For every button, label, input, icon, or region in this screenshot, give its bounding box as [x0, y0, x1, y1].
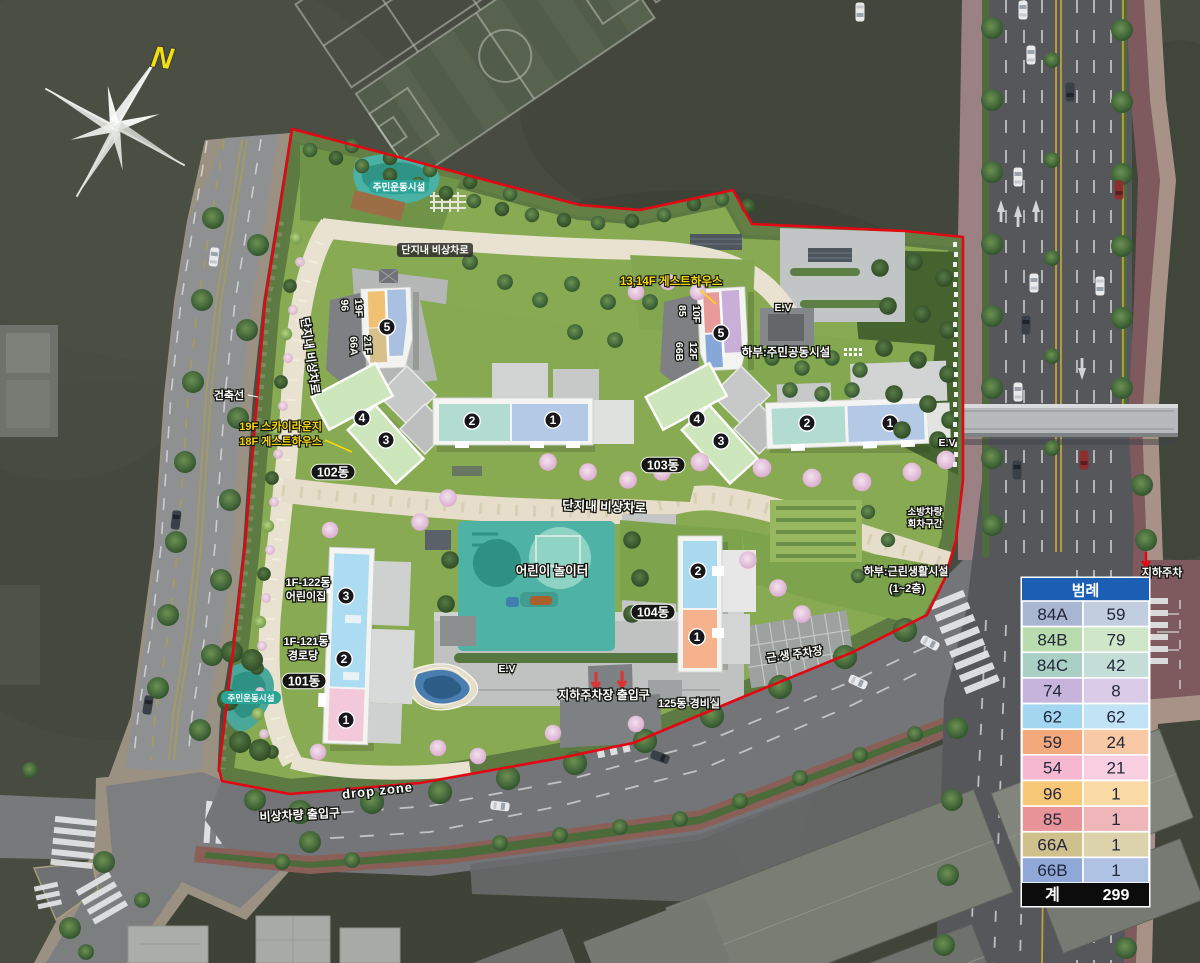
svg-text:계: 계 — [1045, 885, 1060, 904]
svg-text:1: 1 — [550, 413, 557, 427]
svg-text:103동: 103동 — [647, 459, 680, 473]
svg-text:1F-122동: 1F-122동 — [286, 576, 331, 589]
svg-text:E.V: E.V — [939, 437, 956, 449]
svg-text:85: 85 — [1043, 810, 1062, 829]
svg-text:10F: 10F — [690, 305, 702, 324]
svg-text:104동: 104동 — [637, 606, 670, 620]
svg-text:범례: 범례 — [1072, 583, 1100, 600]
svg-text:1: 1 — [694, 630, 701, 644]
svg-text:2: 2 — [469, 414, 476, 428]
svg-text:59: 59 — [1043, 733, 1062, 752]
svg-text:1: 1 — [1111, 836, 1120, 855]
svg-text:건축선: 건축선 — [214, 388, 244, 402]
svg-text:1: 1 — [1111, 784, 1120, 803]
svg-text:19F 스카이라운지: 19F 스카이라운지 — [239, 419, 322, 433]
svg-text:지하주차장 출입구: 지하주차장 출입구 — [558, 687, 650, 702]
svg-text:주민운동시설: 주민운동시설 — [373, 182, 426, 194]
svg-text:19F: 19F — [352, 299, 365, 318]
svg-text:하부:근린생활시설: 하부:근린생활시설 — [864, 564, 949, 578]
svg-text:62: 62 — [1043, 707, 1062, 726]
svg-text:2: 2 — [341, 652, 348, 666]
svg-text:62: 62 — [1107, 707, 1126, 726]
svg-text:어린이집: 어린이집 — [286, 589, 326, 603]
svg-text:1: 1 — [343, 713, 350, 727]
svg-text:5: 5 — [718, 326, 725, 340]
svg-text:96: 96 — [338, 299, 350, 311]
svg-text:단지내 비상차로: 단지내 비상차로 — [562, 498, 647, 516]
svg-text:(1~2층): (1~2층) — [889, 581, 925, 595]
svg-text:3: 3 — [343, 589, 350, 603]
svg-text:2: 2 — [804, 416, 811, 430]
svg-text:84B: 84B — [1037, 631, 1067, 650]
svg-text:어린이 놀이터: 어린이 놀이터 — [516, 563, 588, 578]
svg-text:299: 299 — [1103, 887, 1130, 904]
svg-text:소방차량: 소방차량 — [908, 506, 943, 518]
svg-text:회차구간: 회차구간 — [908, 518, 943, 530]
svg-text:단지내 비상차로: 단지내 비상차로 — [401, 244, 468, 257]
svg-text:21: 21 — [1107, 759, 1126, 778]
svg-text:21F: 21F — [361, 336, 374, 355]
svg-text:3: 3 — [718, 434, 725, 448]
svg-text:경로당: 경로당 — [288, 648, 318, 662]
svg-text:E.V: E.V — [775, 302, 792, 314]
svg-text:13,14F 게스트하우스: 13,14F 게스트하우스 — [620, 274, 723, 288]
svg-text:24: 24 — [1107, 733, 1126, 752]
svg-text:85: 85 — [676, 305, 688, 317]
svg-text:54: 54 — [1043, 759, 1062, 778]
svg-text:1: 1 — [887, 416, 894, 430]
svg-text:84A: 84A — [1037, 605, 1068, 624]
svg-text:96: 96 — [1043, 784, 1062, 803]
svg-text:12F: 12F — [687, 342, 699, 361]
svg-text:E.V: E.V — [499, 663, 516, 675]
svg-text:102동: 102동 — [317, 466, 350, 480]
svg-text:74: 74 — [1043, 682, 1062, 701]
svg-text:101동: 101동 — [288, 675, 321, 689]
svg-text:4: 4 — [694, 412, 701, 426]
svg-text:1F-121동: 1F-121동 — [284, 635, 329, 648]
svg-text:125동 경비실: 125동 경비실 — [658, 696, 720, 710]
svg-text:5: 5 — [384, 320, 391, 334]
svg-text:66B: 66B — [1037, 861, 1067, 880]
svg-text:3: 3 — [383, 433, 390, 447]
svg-text:66A: 66A — [1037, 836, 1068, 855]
svg-text:4: 4 — [359, 411, 366, 425]
svg-text:1: 1 — [1111, 861, 1120, 880]
svg-text:79: 79 — [1107, 631, 1126, 650]
svg-text:하부:주민공동시설: 하부:주민공동시설 — [742, 345, 830, 359]
svg-text:8: 8 — [1111, 682, 1120, 701]
svg-text:18F 게스트하우스: 18F 게스트하우스 — [239, 434, 322, 448]
svg-text:2: 2 — [695, 564, 702, 578]
svg-text:66A: 66A — [347, 336, 360, 356]
svg-text:66B: 66B — [673, 342, 685, 362]
svg-text:42: 42 — [1107, 656, 1126, 675]
svg-text:84C: 84C — [1037, 656, 1068, 675]
svg-text:주민운동시설: 주민운동시설 — [228, 693, 275, 703]
svg-text:59: 59 — [1107, 605, 1126, 624]
svg-text:1: 1 — [1111, 810, 1120, 829]
